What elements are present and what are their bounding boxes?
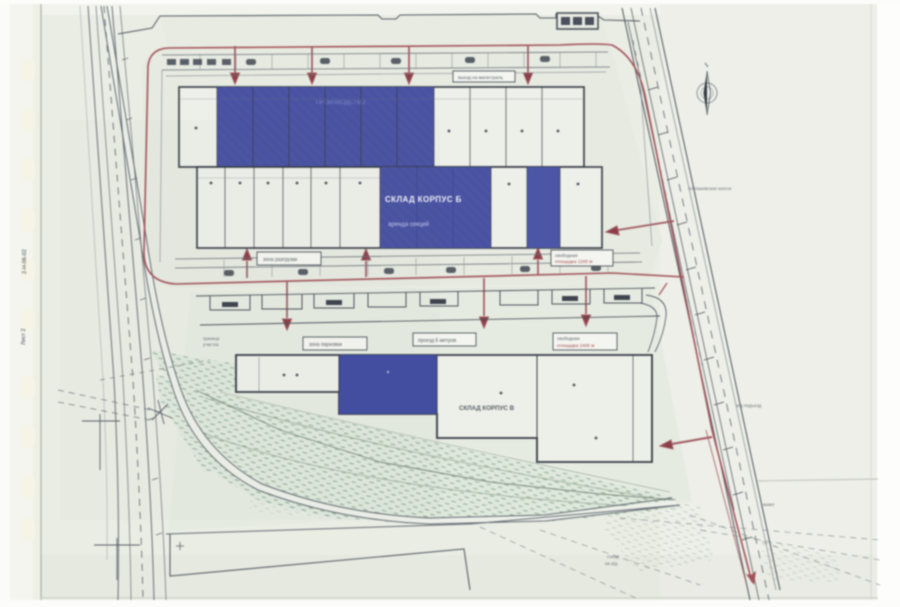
- svg-text:а/д подъезд: а/д подъезд: [736, 403, 762, 408]
- svg-text:СКЛАД КОРПУС В: СКЛАД КОРПУС В: [459, 405, 515, 412]
- svg-text:ПРОИЗВОДСТВО: ПРОИЗВОДСТВО: [316, 100, 366, 106]
- svg-text:Лист 2: Лист 2: [21, 328, 27, 345]
- svg-text:площадка 1200 м: площадка 1200 м: [555, 259, 592, 264]
- svg-text:площадка 2400 м: площадка 2400 м: [557, 343, 594, 348]
- svg-text:выезд на магистраль: выезд на магистраль: [458, 75, 504, 80]
- svg-text:Хорошевское шоссе: Хорошевское шоссе: [688, 186, 732, 191]
- svg-text:2-Н-06-02: 2-Н-06-02: [22, 249, 28, 274]
- svg-text:свободная: свободная: [557, 336, 580, 341]
- svg-text:свободная: свободная: [555, 253, 578, 258]
- svg-text:кювет: кювет: [763, 502, 775, 507]
